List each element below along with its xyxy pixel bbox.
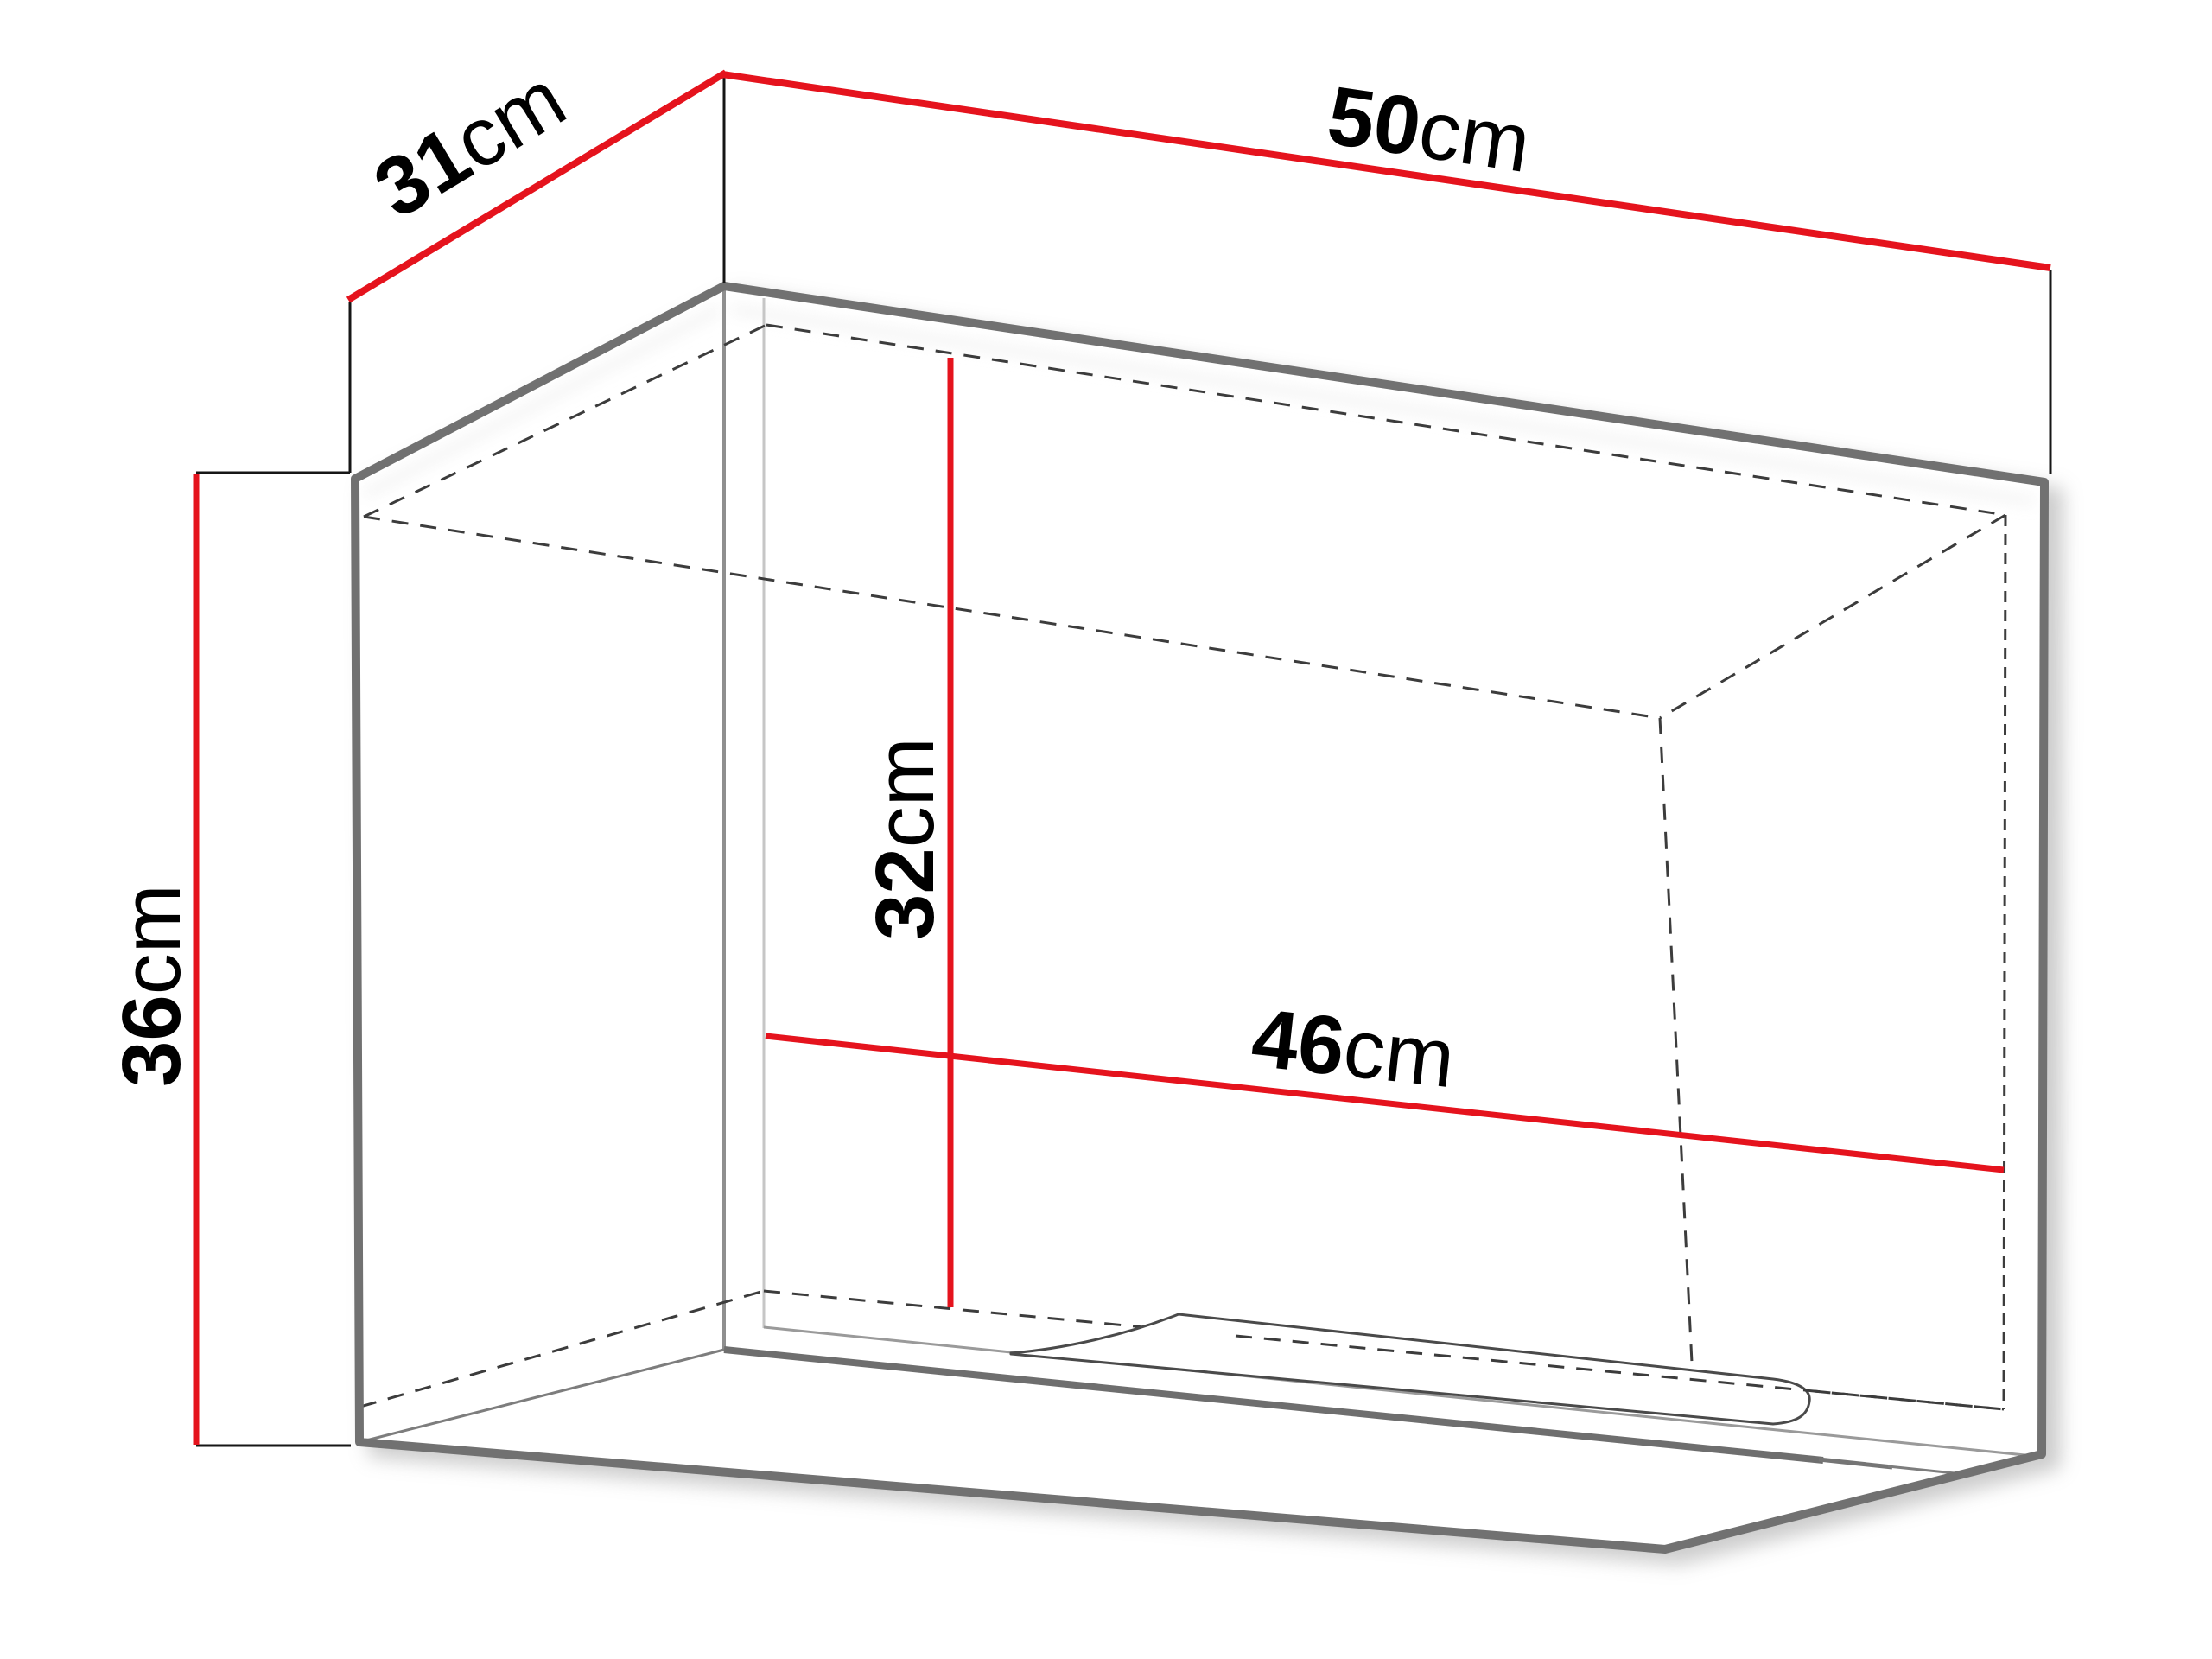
svg-text:36cm: 36cm — [105, 884, 198, 1087]
svg-text:32cm: 32cm — [859, 737, 951, 940]
